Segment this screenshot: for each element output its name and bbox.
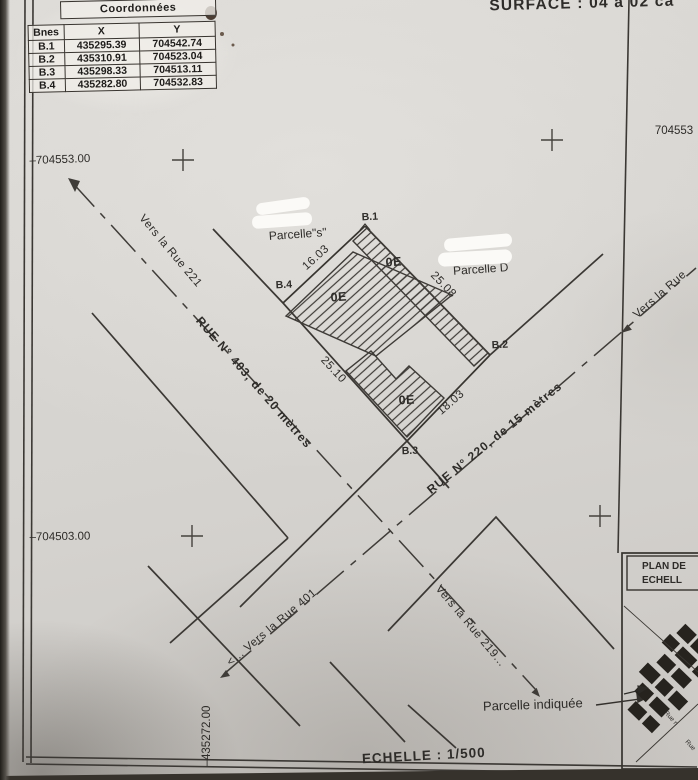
inset-city-blocks [612, 621, 698, 736]
scan-left-edge-shadow [0, 0, 10, 780]
inset-rue-label-1: Rue n [663, 710, 680, 728]
col-header-y: Y [139, 21, 216, 38]
cell-y: 704532.83 [140, 75, 217, 90]
location-inset: PLAN DE ECHELL Rue n Rue [612, 553, 698, 769]
parcel-s-label: Parcelle"s" [268, 225, 327, 243]
inset-title-line2: ECHELL [642, 575, 682, 586]
street-220-label: RUE N° 220, de 15 mètres [424, 379, 565, 497]
street-403-label: RUE N° 403, de 20 mètres [193, 314, 315, 451]
cell-bne: B.4 [29, 79, 65, 93]
building-code-strip: 0E [385, 254, 402, 269]
scan-bottom-shadow [0, 768, 698, 780]
building-code-lower: 0E [398, 393, 415, 408]
direction-rue-221: Vers la Rue 221 [137, 212, 205, 289]
dim-16-03: 16.03 [300, 243, 331, 273]
grid-label-north: –704553.00 [29, 153, 90, 167]
corner-b1: B.1 [361, 211, 378, 224]
building-lower [346, 351, 444, 437]
grid-label-south: –704503.00 [29, 530, 90, 543]
col-header-bnes: Bnes [28, 25, 64, 41]
direction-rue-right: Vers la Rue [631, 269, 689, 321]
grid-label-easting-right: 704553 [655, 125, 693, 137]
cell-x: 435282.80 [65, 77, 140, 92]
cell-bne: B.2 [29, 53, 65, 67]
grid-label-west-vertical: –435272.00 [201, 706, 213, 767]
col-header-x: X [64, 23, 139, 40]
inset-rue-label-2: Rue [684, 739, 697, 753]
coordinates-table: Coordonnées Bnes X Y B.1 435295.39 70454… [27, 0, 219, 93]
corner-b4: B.4 [275, 279, 292, 292]
surface-title: SURFACE : 04 a 02 ca [489, 0, 674, 14]
building-code-upper: 0E [330, 289, 347, 304]
cell-bne: B.1 [28, 40, 64, 54]
parcelle-indiquee-label: Parcelle indiquée [483, 695, 583, 713]
corner-b2: B.2 [491, 339, 508, 352]
cell-bne: B.3 [29, 66, 65, 80]
cadastral-plan-drawing: –704553.00 –704503.00 –435272.00 704553 [0, 0, 698, 780]
direction-rue-219: Vers la Rue 219... [433, 583, 508, 669]
coordinates-table-title: Coordonnées [60, 0, 216, 19]
direction-rue-401: <... Vers la Rue 401 [225, 587, 320, 669]
corner-b3: B.3 [402, 445, 419, 458]
inset-title-line1: PLAN DE [642, 561, 686, 572]
coordinates-table-grid: Bnes X Y B.1 435295.39 704542.74 B.2 435… [28, 21, 217, 93]
